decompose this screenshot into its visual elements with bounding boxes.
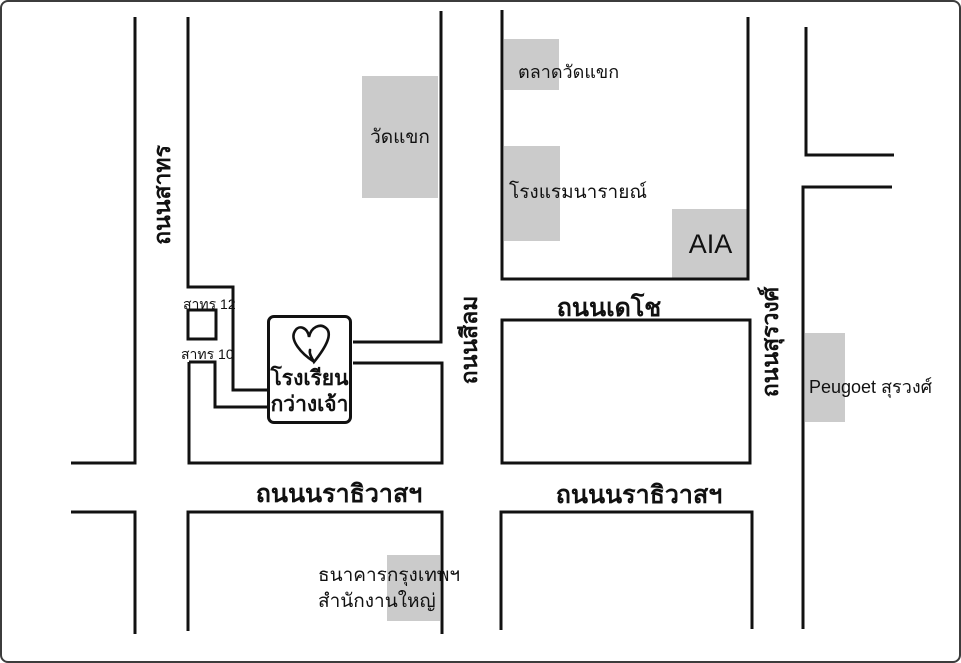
road-sathon-west-line-lower bbox=[71, 512, 135, 634]
school-label-line1: โรงเรียน bbox=[271, 366, 349, 392]
surawong-road-label: ถนนสุรวงศ์ bbox=[755, 252, 785, 432]
road-narathiwat-south-east bbox=[501, 512, 752, 630]
road-silom-west-line bbox=[353, 11, 441, 342]
peugeot-label: Peugoet สุรวงศ์ bbox=[809, 372, 932, 401]
decho-road-label: ถนนเดโช bbox=[529, 288, 689, 328]
hand-drawn-map: วัดแขก AIA bbox=[0, 0, 961, 663]
narathiwat-road-label-east: ถนนนราธิวาสฯ bbox=[539, 475, 739, 515]
sathon-road-label: ถนนสาทร bbox=[147, 115, 177, 275]
heart-icon bbox=[278, 320, 342, 366]
bangkok-bank-label-line2: สำนักงานใหญ่ bbox=[318, 586, 436, 616]
school-label-line2: กว่างเจ้า bbox=[271, 392, 349, 418]
silom-road-label: ถนนสีลม bbox=[454, 261, 484, 419]
road-decho-block bbox=[502, 320, 750, 463]
narai-hotel-label: โรงแรมนารายณ์ bbox=[509, 177, 647, 207]
soi-12-label: สาทร 12 bbox=[183, 294, 236, 316]
narathiwat-road-label-west: ถนนนราธิวาสฯ bbox=[239, 474, 439, 514]
talat-wat-khaek-label: ตลาดวัดแขก bbox=[518, 57, 619, 86]
road-sathon-east-line bbox=[188, 17, 268, 390]
road-surawong-northeast-corner bbox=[806, 27, 894, 155]
road-silom-east-decho-surawong bbox=[502, 10, 748, 279]
soi-10-label: สาทร 10 bbox=[181, 344, 234, 366]
road-surawong-east-line bbox=[803, 187, 892, 629]
road-sathon-west-line bbox=[71, 17, 135, 463]
school-building: โรงเรียน กว่างเจ้า bbox=[267, 315, 352, 424]
road-soi-10 bbox=[189, 362, 268, 407]
